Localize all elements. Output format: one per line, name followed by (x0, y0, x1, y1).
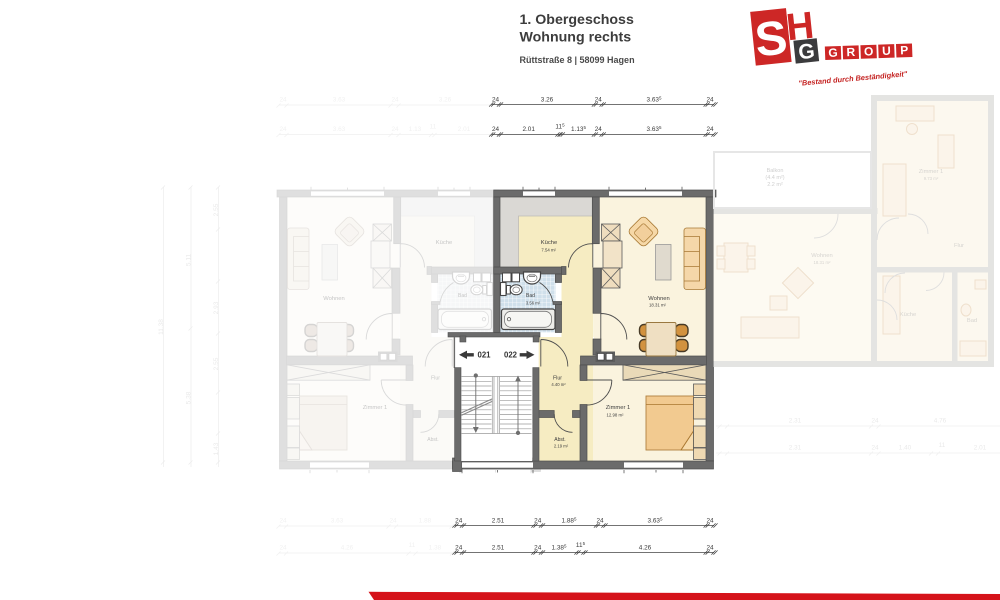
svg-text:Bad: Bad (526, 293, 535, 299)
svg-text:Zimmer 1: Zimmer 1 (363, 405, 387, 411)
svg-text:Wohnen: Wohnen (648, 296, 670, 302)
svg-text:Flur: Flur (553, 376, 562, 382)
svg-text:Wohnung rechts: Wohnung rechts (520, 29, 632, 45)
svg-text:18.31 m²: 18.31 m² (814, 260, 832, 265)
svg-text:18.31 m²: 18.31 m² (649, 303, 667, 308)
svg-text:24: 24 (706, 97, 714, 104)
svg-text:11: 11 (430, 124, 437, 131)
svg-text:2.31: 2.31 (789, 418, 802, 425)
svg-text:Bad: Bad (458, 293, 467, 299)
svg-text:G: G (797, 40, 816, 65)
svg-text:4.26: 4.26 (639, 545, 652, 552)
svg-text:24: 24 (871, 445, 879, 452)
svg-text:3.63: 3.63 (333, 97, 346, 104)
svg-text:021: 021 (477, 351, 491, 360)
svg-text:11.38: 11.38 (158, 319, 165, 335)
svg-text:2.51: 2.51 (492, 545, 505, 552)
svg-text:2.55: 2.55 (213, 357, 220, 370)
svg-text:12.98 m²: 12.98 m² (607, 413, 625, 418)
svg-text:3.63: 3.63 (331, 518, 344, 525)
svg-text:24: 24 (706, 126, 714, 133)
svg-text:24: 24 (279, 97, 287, 104)
svg-text:Küche: Küche (541, 240, 557, 246)
svg-text:2.31: 2.31 (789, 445, 802, 452)
svg-text:3.56 m²: 3.56 m² (526, 301, 541, 306)
svg-text:(4.4 m²): (4.4 m²) (765, 175, 784, 181)
svg-text:1.38: 1.38 (429, 545, 442, 552)
svg-text:Wohnen: Wohnen (323, 296, 345, 302)
svg-text:2.55: 2.55 (213, 203, 220, 216)
svg-text:24: 24 (455, 545, 463, 552)
svg-text:Abst.: Abst. (427, 437, 438, 443)
svg-text:G: G (828, 46, 838, 60)
svg-text:2.01: 2.01 (974, 445, 987, 452)
svg-text:24: 24 (391, 97, 399, 104)
svg-text:2.2 m²: 2.2 m² (767, 182, 783, 188)
svg-text:2.51: 2.51 (492, 518, 505, 525)
svg-text:24: 24 (279, 126, 287, 133)
svg-text:Küche: Küche (900, 312, 916, 318)
svg-text:2.93: 2.93 (213, 301, 220, 314)
svg-text:24: 24 (391, 126, 399, 133)
svg-text:4.40 m²: 4.40 m² (551, 382, 566, 387)
svg-text:Flur: Flur (954, 243, 964, 249)
svg-text:2.19 m²: 2.19 m² (554, 444, 569, 449)
svg-text:022: 022 (504, 351, 518, 360)
svg-text:11: 11 (939, 442, 946, 449)
svg-text:5.38: 5.38 (186, 391, 193, 404)
svg-text:1.88: 1.88 (419, 518, 432, 525)
svg-text:24: 24 (534, 545, 542, 552)
svg-text:24: 24 (706, 518, 714, 525)
svg-text:3.63: 3.63 (333, 126, 346, 133)
svg-text:2.01: 2.01 (458, 126, 471, 133)
svg-text:4.76: 4.76 (934, 418, 947, 425)
svg-text:1.43: 1.43 (213, 442, 220, 455)
svg-text:Zimmer 1: Zimmer 1 (919, 169, 943, 175)
svg-text:4.26: 4.26 (341, 545, 354, 552)
svg-text:5.11: 5.11 (186, 254, 193, 267)
svg-text:Flur: Flur (431, 376, 440, 382)
svg-text:Rüttstraße 8 | 58099 Hagen: Rüttstraße 8 | 58099 Hagen (520, 55, 635, 65)
svg-text:24: 24 (706, 545, 714, 552)
svg-text:Balkon: Balkon (767, 168, 784, 174)
svg-text:24: 24 (596, 518, 604, 525)
svg-text:P: P (900, 43, 908, 57)
svg-text:Küche: Küche (436, 240, 452, 246)
svg-text:11: 11 (409, 542, 416, 549)
svg-text:24: 24 (279, 518, 287, 525)
svg-text:Zimmer 1: Zimmer 1 (606, 405, 630, 411)
svg-text:24: 24 (279, 545, 287, 552)
svg-text:24: 24 (389, 518, 397, 525)
svg-text:24: 24 (455, 518, 463, 525)
svg-text:O: O (864, 44, 874, 58)
svg-text:S: S (752, 11, 789, 67)
svg-text:1. Obergeschoss: 1. Obergeschoss (520, 12, 634, 28)
svg-text:2.01: 2.01 (522, 126, 535, 133)
svg-text:24: 24 (595, 126, 603, 133)
svg-text:24: 24 (492, 97, 500, 104)
svg-text:24: 24 (595, 97, 603, 104)
svg-text:1.40: 1.40 (899, 445, 912, 452)
svg-text:3.26: 3.26 (541, 97, 554, 104)
svg-text:24: 24 (492, 126, 500, 133)
svg-text:Bad: Bad (967, 318, 977, 324)
svg-text:1.13: 1.13 (409, 126, 422, 133)
svg-text:7.54 m²: 7.54 m² (541, 248, 556, 253)
svg-text:R: R (846, 45, 855, 59)
svg-text:24: 24 (534, 518, 542, 525)
svg-text:3.26: 3.26 (439, 97, 452, 104)
svg-text:Wohnen: Wohnen (811, 253, 833, 259)
svg-text:U: U (882, 44, 891, 58)
svg-text:24: 24 (871, 418, 879, 425)
svg-text:Abst.: Abst. (554, 437, 565, 443)
svg-text:9.73 m²: 9.73 m² (924, 176, 939, 181)
